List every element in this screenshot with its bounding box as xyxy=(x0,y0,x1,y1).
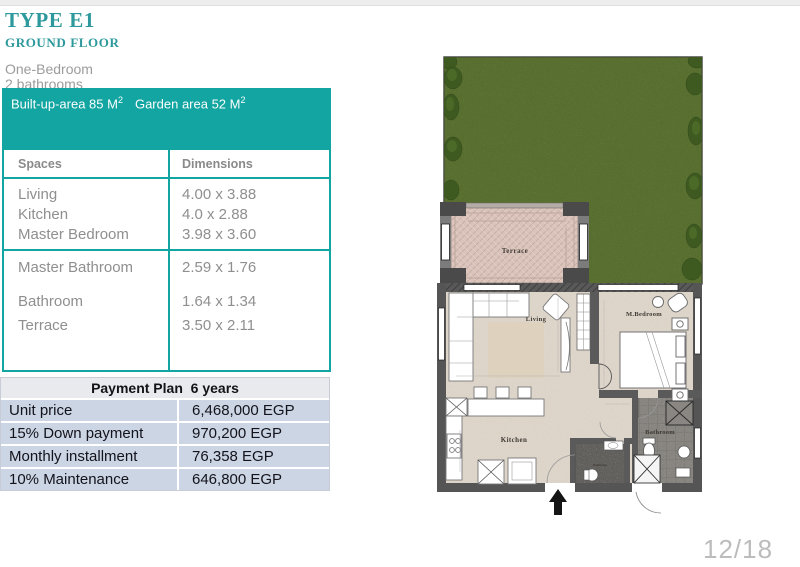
living-rug xyxy=(488,322,544,378)
space-dim: 4.00 x 3.88 xyxy=(168,185,329,205)
payment-value: 6,468,000 EGP xyxy=(177,400,329,421)
payment-label: Monthly installment xyxy=(1,448,177,465)
space-name: Master Bedroom xyxy=(4,225,168,245)
space-dim: 4.0 x 2.88 xyxy=(168,205,329,225)
terrace-window-right xyxy=(580,224,588,260)
bedroom-window xyxy=(598,285,678,291)
page-title: TYPE E1 xyxy=(5,8,335,33)
page-number: 12/18 xyxy=(703,534,773,565)
table-row: Bathroom 1.64 x 1.34 xyxy=(4,294,329,310)
sink xyxy=(678,446,690,458)
table-column-divider xyxy=(168,150,170,370)
payment-label: 10% Maintenance xyxy=(1,471,177,488)
table-row: Master Bedroom 3.98 x 3.60 xyxy=(4,225,329,245)
page-header: TYPE E1 GROUND FLOOR One-Bedroom 2 bathr… xyxy=(5,8,335,92)
area-banner: Built-up-area 85 M2Garden area 52 M2 xyxy=(2,88,331,148)
window-top-strip xyxy=(0,0,800,6)
kitchen-label: Kitchen xyxy=(501,436,528,444)
table-row: 10% Maintenance 646,800 EGP xyxy=(1,469,329,490)
garden-area-label: Garden area 52 M xyxy=(135,96,241,111)
payment-value: 76,358 EGP xyxy=(177,446,329,467)
terrace-label: Terrace xyxy=(502,247,529,255)
closet xyxy=(577,294,590,350)
payment-plan-title: Payment Plan 6 years xyxy=(1,378,329,398)
spaces-dimensions-table: Spaces Dimensions Living 4.00 x 3.88 Kit… xyxy=(2,148,331,372)
apartment: Living M.Bedroom Kitchen Bathroom Bathro… xyxy=(437,283,702,515)
living-window xyxy=(464,285,520,291)
side-window xyxy=(439,308,445,360)
bedroom-label: M.Bedroom xyxy=(626,311,662,318)
spaces-table-header: Spaces Dimensions xyxy=(4,150,329,179)
spaces-group-secondary: Master Bathroom 2.59 x 1.76 Bathroom 1.6… xyxy=(4,251,329,334)
table-row: Unit price 6,468,000 EGP xyxy=(1,400,329,421)
payment-plan-table: Payment Plan 6 years Unit price 6,468,00… xyxy=(0,377,330,491)
space-name: Kitchen xyxy=(4,205,168,225)
page-subtitle: GROUND FLOOR xyxy=(5,35,335,51)
living-label: Living xyxy=(526,316,547,323)
small-bathroom-label: Bathroom xyxy=(593,463,607,467)
built-up-area-sup: 2 xyxy=(118,95,123,105)
payment-label: 15% Down payment xyxy=(1,425,177,442)
space-name: Living xyxy=(4,185,168,205)
table-row: Master Bathroom 2.59 x 1.76 xyxy=(4,260,329,276)
terrace-window-left xyxy=(442,224,450,260)
entrance-arrow-icon xyxy=(549,489,567,515)
dimensions-header-cell: Dimensions xyxy=(168,157,329,171)
bedroom-side-window xyxy=(695,298,701,354)
terrace-room: Terrace xyxy=(440,202,589,283)
spaces-group-main: Living 4.00 x 3.88 Kitchen 4.0 x 2.88 Ma… xyxy=(4,179,329,251)
table-row: Kitchen 4.0 x 2.88 xyxy=(4,205,329,225)
table-row: Terrace 3.50 x 2.11 xyxy=(4,318,329,334)
payment-value: 970,200 EGP xyxy=(177,423,329,444)
space-dim: 3.98 x 3.60 xyxy=(168,225,329,245)
built-up-area-label: Built-up-area 85 M xyxy=(11,96,118,111)
table-row: 15% Down payment 970,200 EGP xyxy=(1,423,329,444)
spaces-header-cell: Spaces xyxy=(4,157,168,171)
space-name: Bathroom xyxy=(4,294,168,310)
payment-value: 646,800 EGP xyxy=(177,469,329,490)
space-dim: 1.64 x 1.34 xyxy=(168,294,329,310)
bathroom-window xyxy=(695,428,701,458)
space-dim: 3.50 x 2.11 xyxy=(168,318,329,334)
table-row: Living 4.00 x 3.88 xyxy=(4,185,329,205)
garden-area-sup: 2 xyxy=(240,95,245,105)
payment-label: Unit price xyxy=(1,402,177,419)
space-dim: 2.59 x 1.76 xyxy=(168,260,329,276)
floor-plan-image: Terrace xyxy=(437,50,705,515)
table-row: Monthly installment 76,358 EGP xyxy=(1,446,329,467)
bathroom-label: Bathroom xyxy=(645,429,675,436)
space-name: Terrace xyxy=(4,318,168,334)
space-name: Master Bathroom xyxy=(4,260,168,276)
unit-type-line: One-Bedroom xyxy=(5,62,335,77)
